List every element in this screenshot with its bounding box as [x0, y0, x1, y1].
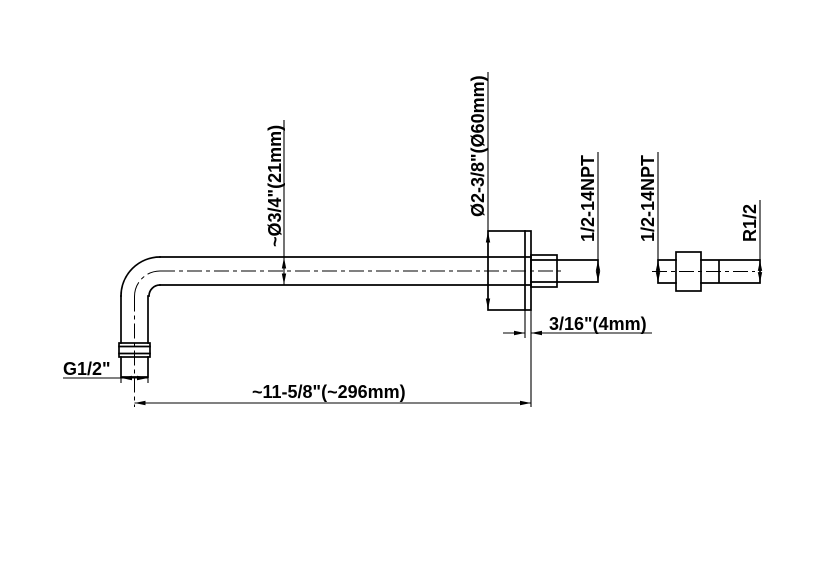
arm-bend-centerline [135, 271, 161, 297]
centerlines [135, 271, 756, 407]
flange-dia-label: Ø2-3/8"(Ø60mm) [468, 75, 488, 217]
arrow-up-icon [282, 258, 286, 269]
arrow-down-icon [596, 271, 600, 281]
arrow-down-icon [656, 272, 660, 282]
head-thread-label: G1/2" [63, 359, 111, 379]
arrow-right-icon [514, 331, 525, 335]
arrow-down-icon [758, 272, 762, 282]
arrow-down-icon [486, 299, 490, 310]
arrow-right-icon [520, 401, 531, 405]
drawing-canvas: ~Ø3/4"(21mm) Ø2-3/8"(Ø60mm) 1/2-14NPT 1/… [0, 0, 831, 587]
arm-length-label: ~11-5/8"(~296mm) [252, 382, 406, 402]
arm-bend-outer-arc [121, 257, 160, 296]
flange-thickness-label: 3/16"(4mm) [549, 314, 647, 334]
arrow-left-icon [531, 331, 542, 335]
arm-od-label: ~Ø3/4"(21mm) [265, 125, 285, 247]
dimension-labels: ~Ø3/4"(21mm) Ø2-3/8"(Ø60mm) 1/2-14NPT 1/… [63, 75, 760, 402]
wall-thread-stub [557, 260, 598, 282]
shower-arm-outline [119, 231, 598, 377]
arrow-up-icon [758, 261, 762, 271]
arrow-down-icon [282, 274, 286, 285]
wall-thread-label: 1/2-14NPT [578, 155, 598, 242]
arrow-left-icon [135, 401, 146, 405]
adapter-outlet-thread-label: R1/2 [740, 204, 760, 242]
arrow-up-icon [596, 261, 600, 271]
technical-drawing: ~Ø3/4"(21mm) Ø2-3/8"(Ø60mm) 1/2-14NPT 1/… [0, 0, 831, 587]
arrow-up-icon [486, 232, 490, 243]
adapter-inlet-thread-label: 1/2-14NPT [638, 155, 658, 242]
arrow-up-icon [656, 261, 660, 271]
arm-bend-inner-arc [149, 285, 160, 296]
